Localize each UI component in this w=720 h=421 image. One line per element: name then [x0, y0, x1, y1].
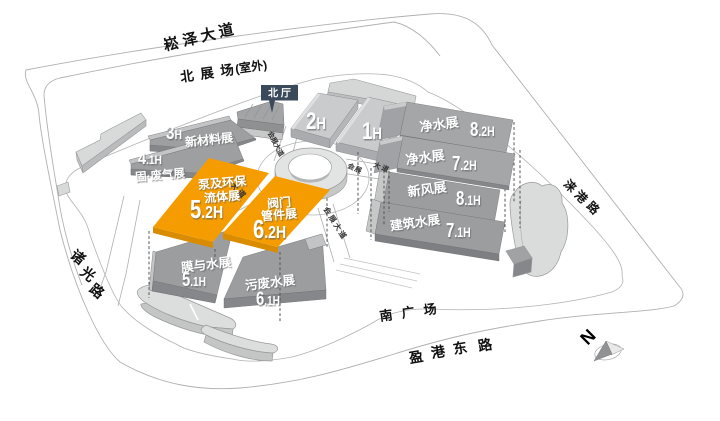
svg-text:南: 南 [379, 307, 394, 324]
svg-text:北: 北 [179, 68, 195, 85]
svg-text:展: 展 [199, 65, 215, 82]
svg-text:广: 广 [401, 304, 416, 321]
svg-text:东: 东 [452, 339, 469, 357]
svg-text:场: 场 [423, 301, 438, 318]
svg-text:北 厅: 北 厅 [268, 87, 291, 100]
svg-text:盈: 盈 [407, 348, 425, 366]
svg-text:场: 场 [219, 62, 234, 79]
svg-text:管件展: 管件展 [260, 205, 297, 223]
